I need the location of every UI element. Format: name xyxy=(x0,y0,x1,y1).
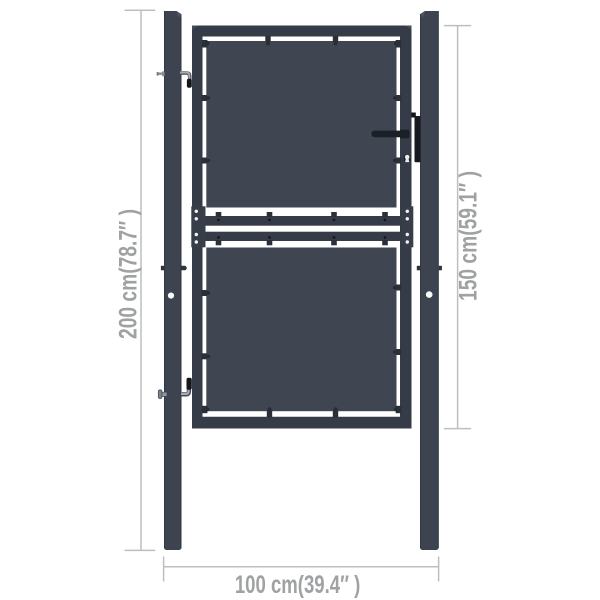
svg-text:100 cm(39.4″ ): 100 cm(39.4″ ) xyxy=(235,571,361,599)
svg-text:200 cm(78.7″ ): 200 cm(78.7″ ) xyxy=(114,209,142,339)
svg-text:150 cm(59.1″ ): 150 cm(59.1″ ) xyxy=(454,171,482,301)
